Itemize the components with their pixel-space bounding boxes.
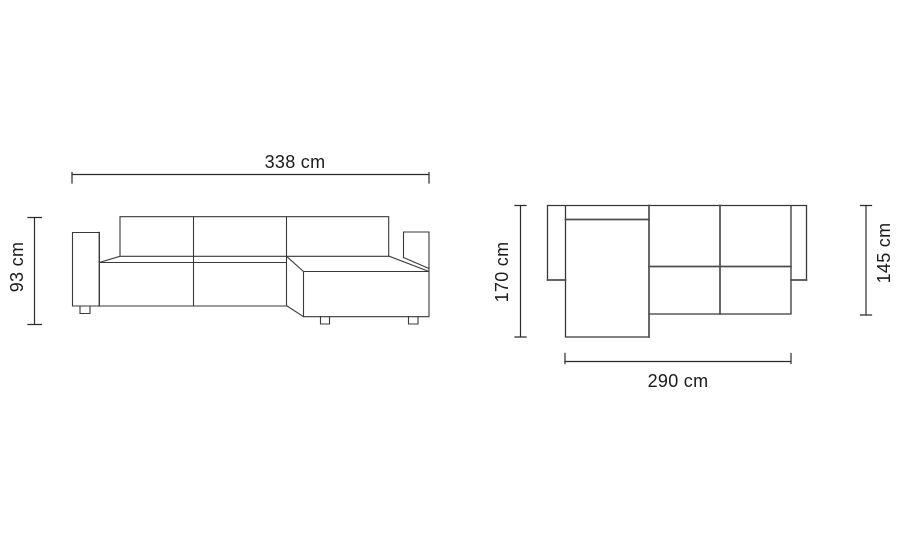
front-width-dimension-label: 338 cm (265, 152, 326, 172)
front-height-dimension: 93 cm (7, 218, 42, 325)
front-seat (73, 256, 389, 306)
top-depth-seat-dimension-label: 145 cm (874, 223, 894, 284)
diagram-svg: 338 cm 93 cm 170 cm (0, 0, 900, 540)
top-width-dimension: 290 cm (565, 354, 791, 392)
front-backrest-seams (194, 217, 287, 306)
front-legs (80, 306, 418, 324)
top-outer-contour (548, 206, 807, 338)
front-left-armrest (73, 233, 100, 307)
top-depth-seat-dimension-line (861, 206, 872, 316)
front-width-dimension: 338 cm (72, 152, 429, 183)
top-depth-total-dimension-line (515, 206, 526, 338)
front-chaise (287, 232, 430, 317)
top-width-dimension-label: 290 cm (648, 371, 709, 391)
front-height-dimension-line (28, 218, 42, 325)
top-depth-total-dimension: 170 cm (492, 206, 526, 338)
front-height-dimension-label: 93 cm (7, 242, 27, 293)
sofa-top-view: 170 cm 145 cm 290 cm (492, 206, 894, 392)
front-width-dimension-line (72, 173, 429, 184)
sofa-dimension-diagram: 338 cm 93 cm 170 cm (0, 0, 900, 540)
top-width-dimension-line (565, 354, 791, 364)
top-depth-seat-dimension: 145 cm (861, 206, 895, 316)
top-depth-total-dimension-label: 170 cm (492, 242, 512, 303)
front-backrest (120, 217, 389, 257)
top-cushion-dividers (566, 206, 792, 315)
sofa-front-view: 338 cm 93 cm (7, 152, 429, 325)
